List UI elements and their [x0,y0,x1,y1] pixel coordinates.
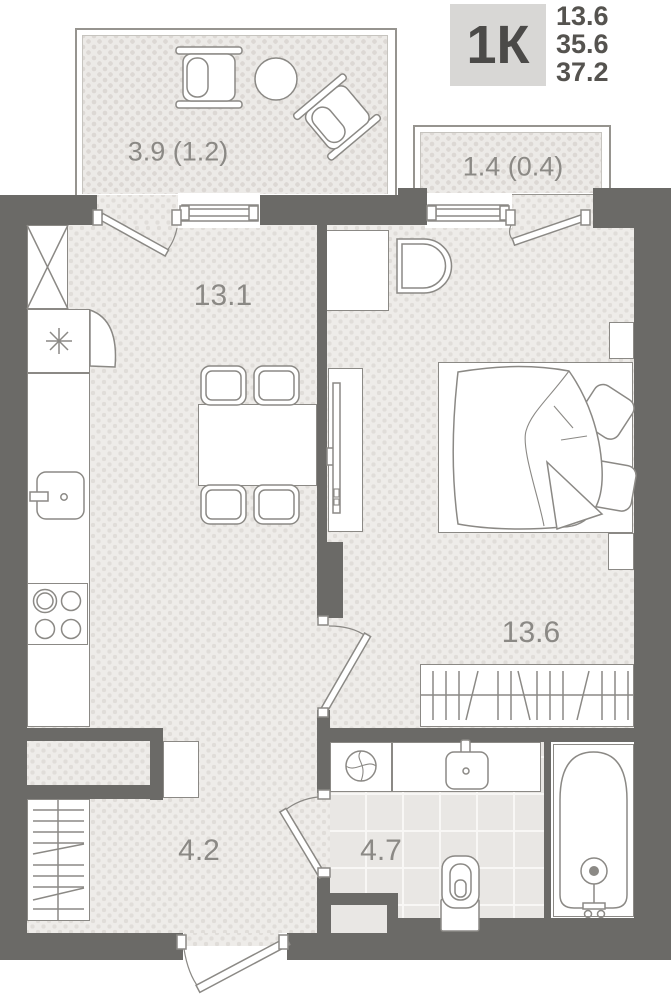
room-label-balcony-left: 3.9 (1.2) [128,137,229,168]
door-swing-icon [506,210,590,245]
bathtub-icon [560,752,627,918]
round-table-icon [255,58,297,100]
door-swing-icon [280,790,330,878]
toilet-icon [441,856,479,931]
area-value: 35.6 [556,30,609,58]
window-icon [427,205,509,221]
stove-icon [34,590,81,639]
plan-type-label: 1К [467,14,530,76]
area-values: 13.6 35.6 37.2 [556,2,609,86]
fridge-snowflake-icon [46,310,115,367]
crib-icon [397,239,452,293]
room-label-hallway: 4.2 [178,834,220,868]
door-swing-icon [93,210,181,256]
armchair-icon [176,47,242,108]
room-label-bathroom: 4.7 [360,834,402,868]
entrance-door-icon [177,935,290,992]
hanger-wardrobe-icon [33,799,84,921]
tv-icon [327,383,340,513]
chair-icon [201,366,299,524]
bed-icon [453,367,602,529]
room-label-balcony-right: 1.4 (0.4) [463,152,564,183]
room-label-living-kitchen: 13.1 [194,279,252,313]
room-label-bedroom: 13.6 [502,616,560,650]
kitchen-sink-icon [30,472,84,519]
area-value: 37.2 [556,58,609,86]
door-swing-icon [318,616,371,717]
plan-detail-layer [0,0,671,1000]
armchair-icon [292,73,381,161]
plan-type-badge: 1К [450,4,546,86]
sink-icon [446,740,488,789]
area-value: 13.6 [556,2,609,30]
hanger-wardrobe-icon [420,671,634,720]
window-icon [180,205,258,221]
washing-machine-icon [346,751,376,781]
floor-plan: 13.1 13.6 4.2 4.7 3.9 (1.2) 1.4 (0.4) 1К… [0,0,671,1000]
wardrobe-x-icon [27,225,68,309]
